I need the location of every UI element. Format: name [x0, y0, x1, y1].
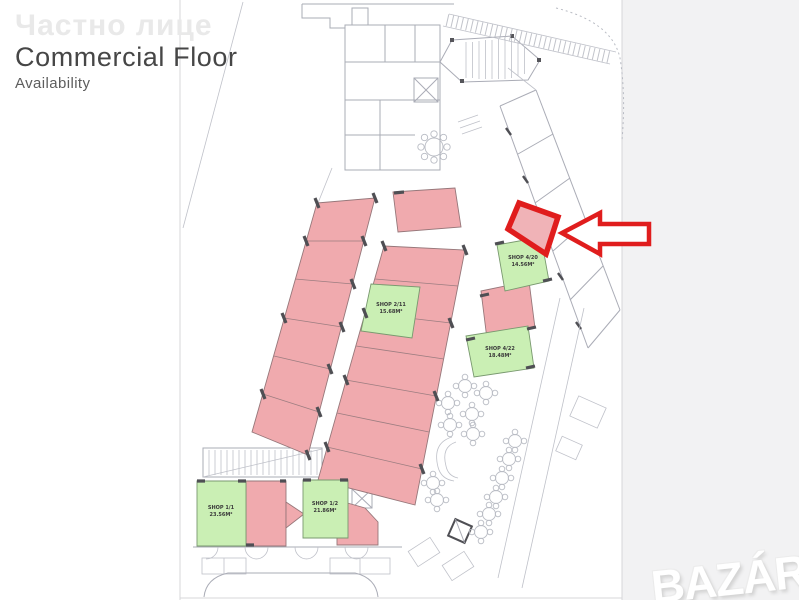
shop-4-22-size: 18.48M²: [489, 353, 512, 359]
shop-1-1-size: 23.56M²: [210, 512, 233, 518]
shop-2-11-size: 15.68M²: [380, 309, 403, 315]
listing-image: Частно лице Commercial Floor Availabilit…: [0, 0, 799, 600]
shelving: [458, 115, 482, 134]
staircase: [440, 34, 541, 83]
right-margin-panel: [622, 0, 799, 600]
shop-1-1-label: SHOP 1/1: [208, 505, 235, 511]
bottom-entrances: [193, 547, 402, 597]
entry-kiosks: [408, 519, 474, 581]
shop-1-2-label: SHOP 1/2: [312, 501, 339, 507]
occupied-unit-top: [393, 188, 461, 232]
lobby-round-table: [418, 131, 450, 163]
elevator-icon: [414, 78, 438, 102]
private-person-watermark: Частно лице: [15, 10, 238, 42]
shop-2-11-label: SHOP 2/11: [376, 302, 406, 308]
shop-4-20-label: SHOP 4/20: [508, 255, 538, 261]
shop-4-22-label: SHOP 4/22: [485, 346, 515, 352]
header-block: Частно лице Commercial Floor Availabilit…: [15, 10, 238, 92]
shop-4-20-size: 14.56M²: [512, 262, 535, 268]
occupied-unit-bottom-a: [246, 481, 286, 546]
page-title: Commercial Floor: [15, 43, 238, 73]
page-subtitle: Availability: [15, 75, 238, 92]
occupied-unit-bottom-a2: [286, 502, 304, 528]
shop-1-2-size: 21.86M²: [314, 508, 337, 514]
site-fence: [556, 8, 624, 140]
curved-bar: [437, 437, 458, 481]
